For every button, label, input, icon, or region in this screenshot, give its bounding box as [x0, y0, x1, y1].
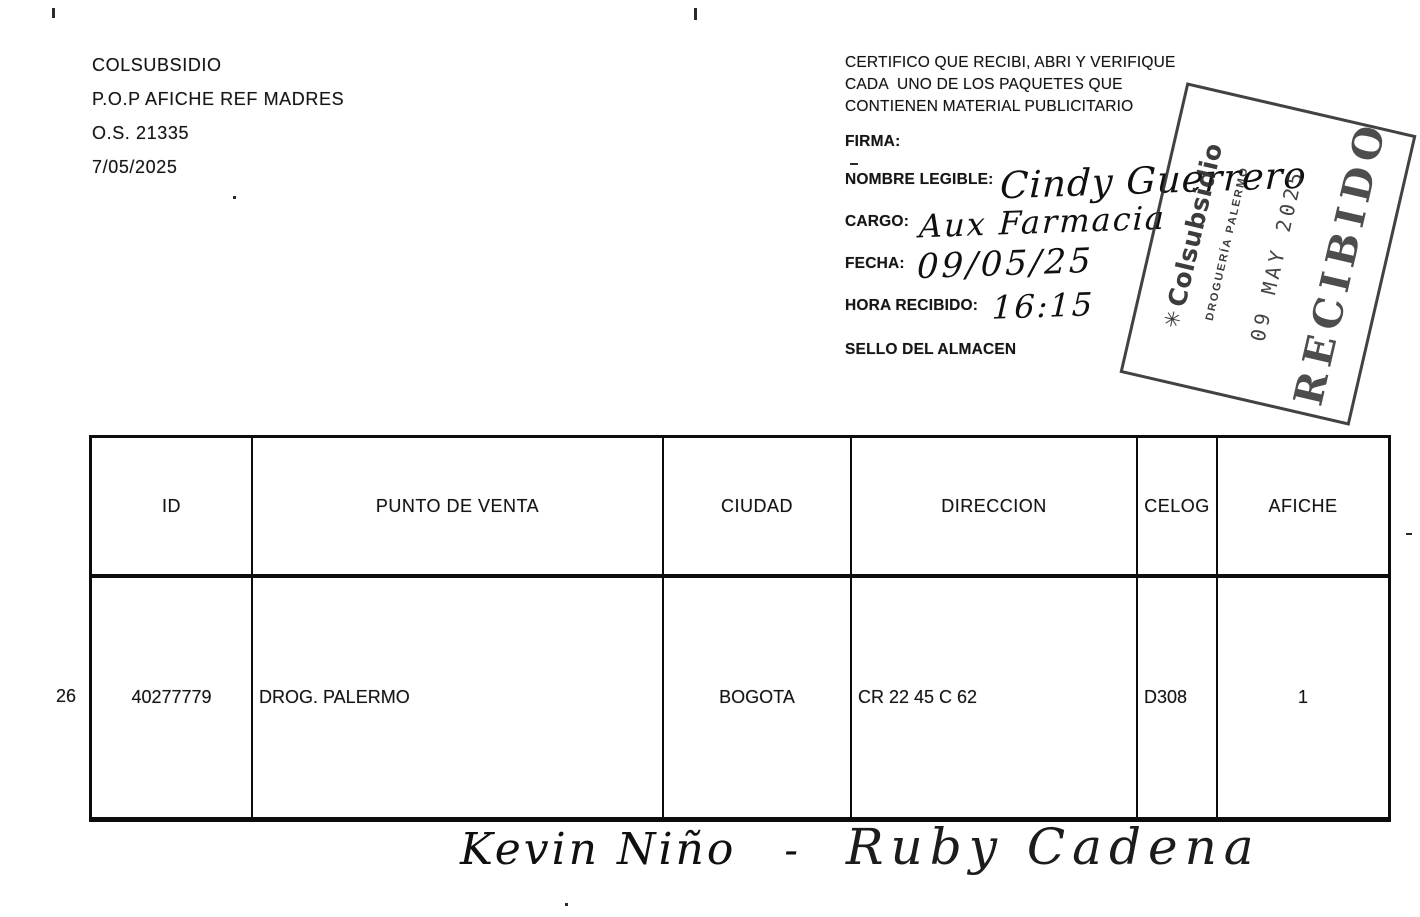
- sello-field: SELLO DEL ALMACEN: [845, 330, 1016, 370]
- column-header-direccion: DIRECCION: [852, 438, 1138, 578]
- sello-label: SELLO DEL ALMACEN: [845, 341, 1016, 359]
- cell-id: 40277779: [92, 578, 253, 817]
- colsubsidio-flower-icon: ✳: [1159, 307, 1186, 330]
- cargo-handwritten-value: Aux Farmacia: [919, 202, 1167, 243]
- signature-name-1: Kevin Niño: [460, 828, 736, 872]
- cell-afiche: 1: [1218, 578, 1388, 817]
- scan-speck: [52, 8, 55, 18]
- signature-dash: -: [784, 831, 798, 871]
- column-header-punto-de-venta: PUNTO DE VENTA: [253, 438, 664, 578]
- certification-text: CERTIFICO QUE RECIBI, ABRI Y VERIFIQUE C…: [845, 52, 1176, 118]
- order-date: 7/05/2025: [92, 150, 344, 184]
- hora-field: HORA RECIBIDO: 16:15: [845, 286, 1094, 326]
- scan-speck: [565, 903, 568, 906]
- order-number: O.S. 21335: [92, 116, 344, 150]
- fecha-label: FECHA:: [845, 255, 905, 273]
- cell-punto-de-venta: DROG. PALERMO: [253, 578, 664, 817]
- scan-speck: [850, 163, 858, 165]
- scanned-delivery-receipt: COLSUBSIDIO P.O.P AFICHE REF MADRES O.S.…: [0, 0, 1420, 917]
- cell-direccion: CR 22 45 C 62: [852, 578, 1138, 817]
- delivery-table: ID PUNTO DE VENTA CIUDAD DIRECCION CELOG…: [89, 435, 1391, 822]
- firma-label: FIRMA:: [845, 133, 900, 151]
- scan-speck: [694, 8, 697, 20]
- header-block: COLSUBSIDIO P.O.P AFICHE REF MADRES O.S.…: [92, 48, 344, 184]
- fecha-field: FECHA: 09/05/25: [845, 244, 1093, 284]
- scan-speck: [1406, 533, 1412, 535]
- cell-ciudad: BOGOTA: [664, 578, 852, 817]
- certification-line-3: CONTIENEN MATERIAL PUBLICITARIO: [845, 96, 1176, 118]
- certification-line-2: CADA UNO DE LOS PAQUETES QUE: [845, 74, 1176, 96]
- recibido-stamp: ✳Colsubsidio DROGUERÍA PALERMO 09 MAY 20…: [1120, 82, 1417, 425]
- column-header-afiche: AFICHE: [1218, 438, 1388, 578]
- cargo-label: CARGO:: [845, 213, 909, 231]
- signature-name-2: Ruby Cadena: [846, 822, 1261, 872]
- row-number: 26: [56, 686, 76, 707]
- column-header-celog: CELOG: [1138, 438, 1218, 578]
- cargo-field: CARGO: Aux Farmacia: [845, 202, 1166, 242]
- bottom-signature: Kevin Niño - Ruby Cadena: [460, 822, 1261, 872]
- hora-handwritten-value: 16:15: [992, 288, 1095, 324]
- certification-line-1: CERTIFICO QUE RECIBI, ABRI Y VERIFIQUE: [845, 52, 1176, 74]
- fecha-handwritten-value: 09/05/25: [916, 244, 1094, 284]
- scan-speck: [233, 196, 236, 199]
- column-header-id: ID: [92, 438, 253, 578]
- cell-celog: D308: [1138, 578, 1218, 817]
- hora-label: HORA RECIBIDO:: [845, 297, 978, 315]
- org-name: COLSUBSIDIO: [92, 48, 344, 82]
- column-header-ciudad: CIUDAD: [664, 438, 852, 578]
- campaign-name: P.O.P AFICHE REF MADRES: [92, 82, 344, 116]
- firma-field: FIRMA:: [845, 122, 900, 162]
- nombre-label: NOMBRE LEGIBLE:: [845, 171, 994, 189]
